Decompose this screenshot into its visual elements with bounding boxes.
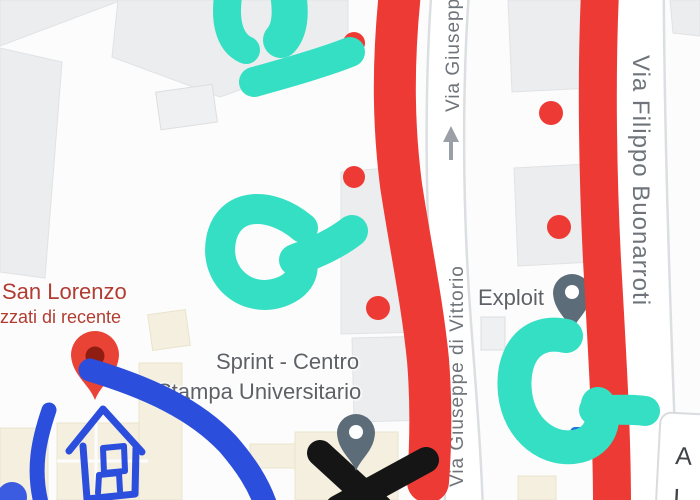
blue-vertical-stroke — [37, 410, 49, 500]
red-stroke-center-road — [395, 0, 430, 482]
map-canvas[interactable]: Via Giusepp Via Giuseppe di Vittorio Via… — [0, 0, 700, 500]
blue-scribbles — [37, 370, 265, 500]
house-window — [103, 446, 125, 473]
blue-curve-stroke — [90, 370, 265, 500]
teal-scribble-top — [281, 0, 290, 40]
blue-house-drawing — [69, 409, 142, 499]
teal-scribble-top — [227, 0, 246, 50]
blue-blob — [0, 482, 27, 500]
annotation-layer — [0, 0, 700, 500]
teal-scribble-top — [254, 52, 350, 82]
red-dot — [547, 215, 571, 239]
red-highlight-strokes — [395, 0, 612, 500]
red-dot — [343, 166, 365, 188]
red-dot — [366, 296, 390, 320]
house-door — [98, 473, 120, 493]
teal-scribble-bottom-right — [594, 410, 645, 411]
red-dot — [539, 101, 563, 125]
